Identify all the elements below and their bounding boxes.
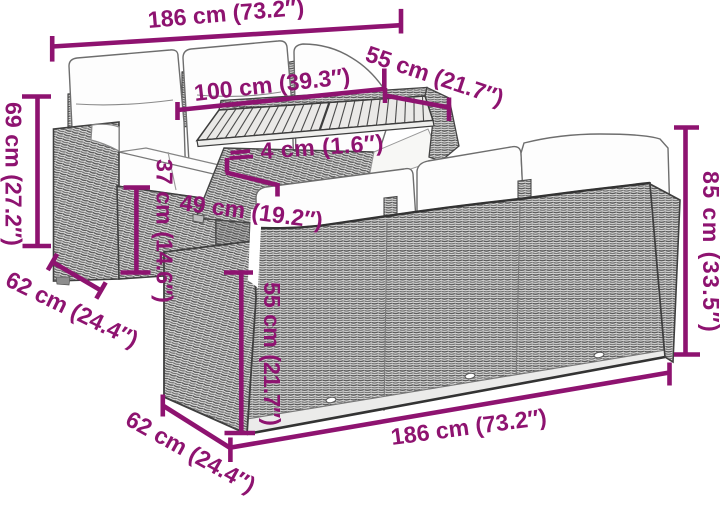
svg-text:85 cm (33.5″): 85 cm (33.5″)	[698, 171, 720, 333]
svg-text:37 cm (14.6″): 37 cm (14.6″)	[152, 159, 178, 303]
svg-text:55 cm (21.7″): 55 cm (21.7″)	[259, 282, 285, 426]
svg-text:69 cm (27.2″): 69 cm (27.2″)	[1, 102, 27, 246]
